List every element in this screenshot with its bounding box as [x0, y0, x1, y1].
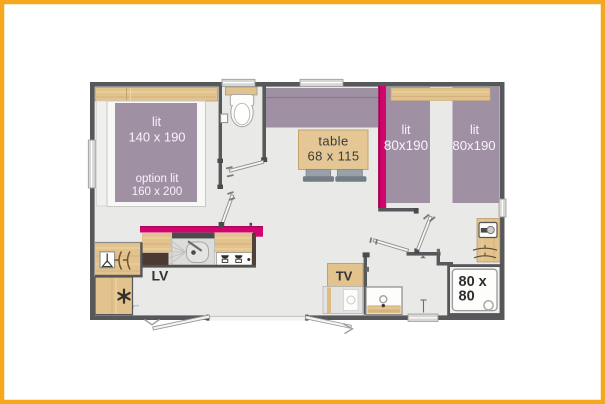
svg-text:table: table — [318, 134, 348, 149]
svg-text:140 x 190: 140 x 190 — [128, 130, 185, 145]
svg-text:80x190: 80x190 — [384, 138, 428, 153]
svg-text:68 x 115: 68 x 115 — [307, 149, 359, 164]
svg-text:LV: LV — [152, 268, 170, 284]
svg-text:option lit: option lit — [136, 173, 180, 185]
svg-text:lit: lit — [152, 115, 162, 129]
svg-text:TV: TV — [336, 269, 353, 284]
svg-text:lit: lit — [401, 123, 411, 137]
svg-text:160 x 200: 160 x 200 — [132, 186, 183, 198]
svg-text:80x190: 80x190 — [452, 138, 495, 153]
svg-text:80: 80 — [459, 289, 475, 305]
svg-text:lit: lit — [470, 123, 480, 137]
